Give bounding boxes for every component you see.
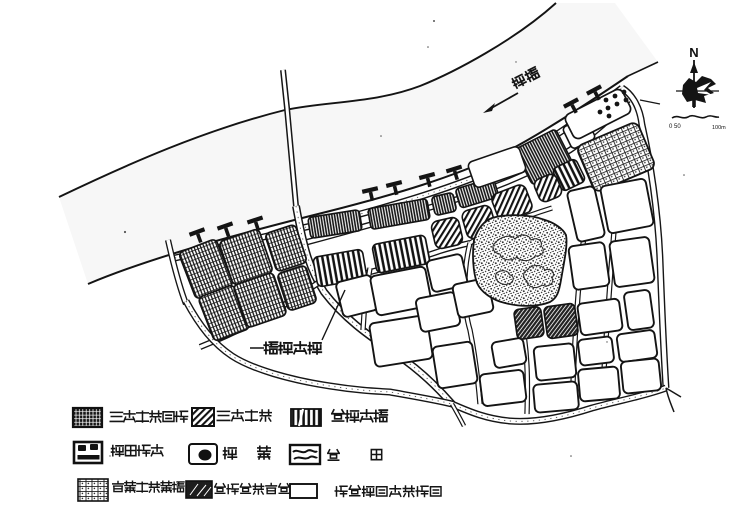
svg-text:100m: 100m — [712, 125, 726, 131]
svg-text:0 50: 0 50 — [669, 124, 681, 130]
svg-text:N: N — [689, 45, 698, 60]
